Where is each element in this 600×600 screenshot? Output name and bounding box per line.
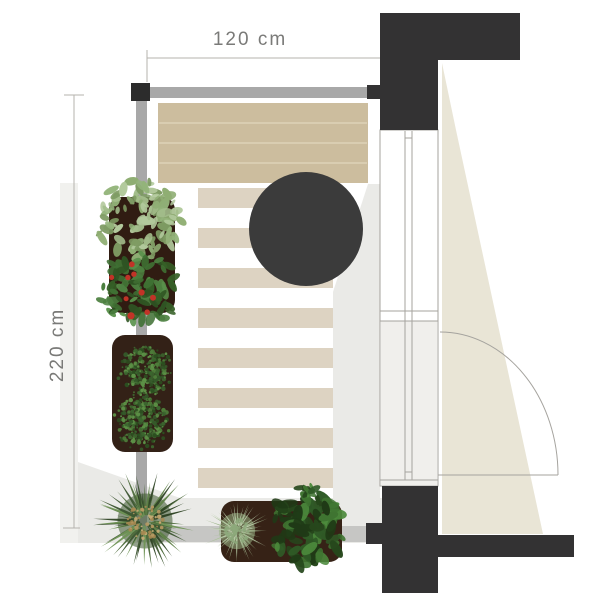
door-swing-shade bbox=[442, 63, 543, 534]
railing-top-bar bbox=[133, 87, 367, 98]
width-dimension-label: 120 cm bbox=[185, 29, 315, 51]
railing-wall-tab-top bbox=[367, 85, 381, 99]
width-dimension-line bbox=[147, 50, 380, 82]
railing-corner-post bbox=[131, 83, 150, 101]
plan-graphic bbox=[0, 0, 600, 600]
railing-wall-tab-bottom bbox=[366, 523, 383, 544]
wood-bench bbox=[158, 103, 368, 183]
height-dimension-label: 220 cm bbox=[47, 280, 67, 410]
bistro-table bbox=[249, 172, 363, 286]
plant-leafy-herb bbox=[94, 176, 188, 264]
balcony-plan-canvas: 120 cm 220 cm bbox=[0, 0, 600, 600]
balcony-door bbox=[380, 130, 438, 486]
